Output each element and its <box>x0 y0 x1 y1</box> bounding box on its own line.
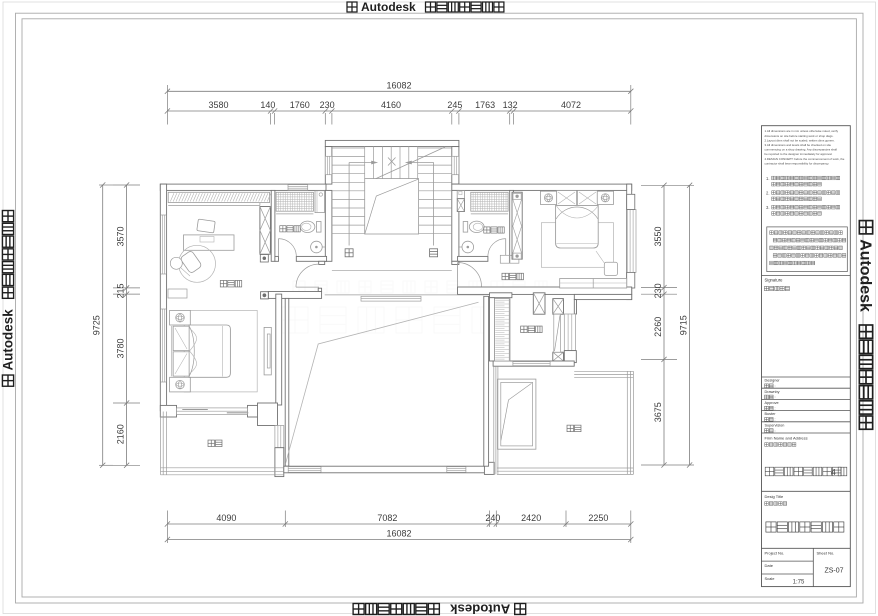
svg-text:Autodesk: Autodesk <box>361 0 416 14</box>
svg-text:Scale: Scale <box>765 576 776 581</box>
svg-text:contractor shall bear responsi: contractor shall bear responsibility for… <box>765 161 830 165</box>
svg-text:Buster: Buster <box>765 412 777 416</box>
svg-text:ZS-07: ZS-07 <box>824 568 843 575</box>
svg-text:Designer: Designer <box>765 379 781 383</box>
svg-text:2.Layout dims shall not be sca: 2.Layout dims shall not be scaled; writt… <box>765 138 835 142</box>
svg-text:4: 4 <box>831 467 836 477</box>
svg-text:3675: 3675 <box>653 402 663 422</box>
svg-text::: : <box>775 406 776 410</box>
svg-text:4160: 4160 <box>381 100 401 110</box>
svg-text:245: 245 <box>447 100 462 110</box>
svg-text:240: 240 <box>485 513 500 523</box>
svg-text:Drawnby: Drawnby <box>765 390 780 394</box>
svg-text:1.All dimensions are in mm unl: 1.All dimensions are in mm unless otherw… <box>765 129 839 133</box>
svg-text:132: 132 <box>503 100 518 110</box>
svg-text:9715: 9715 <box>679 315 689 335</box>
svg-text::: : <box>775 429 776 433</box>
svg-text:3580: 3580 <box>208 100 228 110</box>
svg-text:2260: 2260 <box>653 317 663 337</box>
svg-text:dimensions on site before star: dimensions on site before starting work … <box>765 134 834 138</box>
svg-text:1:75: 1:75 <box>793 580 805 586</box>
svg-text:7082: 7082 <box>377 513 397 523</box>
svg-text:Desig Title: Desig Title <box>765 494 784 499</box>
svg-text:Supervision: Supervision <box>765 423 785 427</box>
svg-text:commencing on a shop drawing.: commencing on a shop drawing. Any discre… <box>765 148 838 152</box>
svg-text:2250: 2250 <box>588 513 608 523</box>
svg-text:Approve: Approve <box>765 401 779 405</box>
svg-text:9725: 9725 <box>92 315 102 335</box>
svg-text:Signature: Signature <box>765 278 784 283</box>
svg-text:Date: Date <box>765 563 774 568</box>
svg-text:Autodesk: Autodesk <box>1 309 16 371</box>
svg-text::: : <box>775 395 776 399</box>
svg-text:Autodesk: Autodesk <box>450 601 511 616</box>
svg-text:4072: 4072 <box>561 100 581 110</box>
svg-text:215: 215 <box>116 283 126 298</box>
svg-text::: : <box>775 384 776 388</box>
svg-text:16082: 16082 <box>386 80 411 90</box>
svg-text:230: 230 <box>653 283 663 298</box>
svg-text:3.All dimensions and levels sh: 3.All dimensions and levels shall be che… <box>765 143 832 147</box>
svg-text:230: 230 <box>320 100 335 110</box>
svg-text:1760: 1760 <box>290 100 310 110</box>
svg-text:16082: 16082 <box>386 529 411 539</box>
svg-text:1763: 1763 <box>475 100 495 110</box>
svg-text:3570: 3570 <box>116 226 126 246</box>
svg-text:Autodesk: Autodesk <box>856 239 873 312</box>
svg-text:2.: 2. <box>766 191 770 196</box>
svg-text:1.: 1. <box>766 176 770 181</box>
svg-text::: : <box>775 418 776 422</box>
svg-text:4090: 4090 <box>216 513 236 523</box>
svg-text:3550: 3550 <box>653 226 663 246</box>
svg-text:4.DESIGN CONCEPT: before the c: 4.DESIGN CONCEPT: before the commencemen… <box>765 157 845 161</box>
svg-text:3780: 3780 <box>116 338 126 358</box>
svg-text:2420: 2420 <box>521 513 541 523</box>
svg-text:be reported to the designer im: be reported to the designer immediately … <box>765 152 833 156</box>
svg-text:2160: 2160 <box>116 424 126 444</box>
svg-text:Sheet No.: Sheet No. <box>817 550 835 555</box>
svg-text:Firm Name and Address: Firm Name and Address <box>765 436 808 441</box>
svg-text:140: 140 <box>260 100 275 110</box>
svg-text:3.: 3. <box>766 205 770 210</box>
svg-text:Project No.: Project No. <box>765 550 785 555</box>
